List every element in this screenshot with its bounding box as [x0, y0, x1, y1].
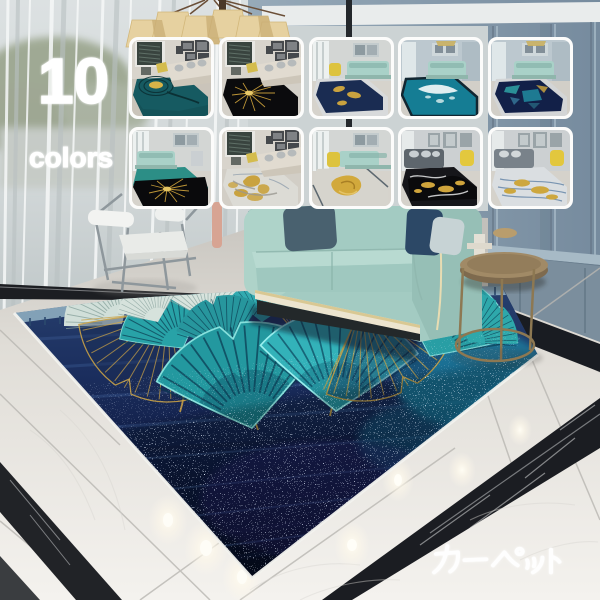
svg-text:colors: colors	[29, 142, 113, 173]
svg-text:10: 10	[38, 45, 109, 117]
